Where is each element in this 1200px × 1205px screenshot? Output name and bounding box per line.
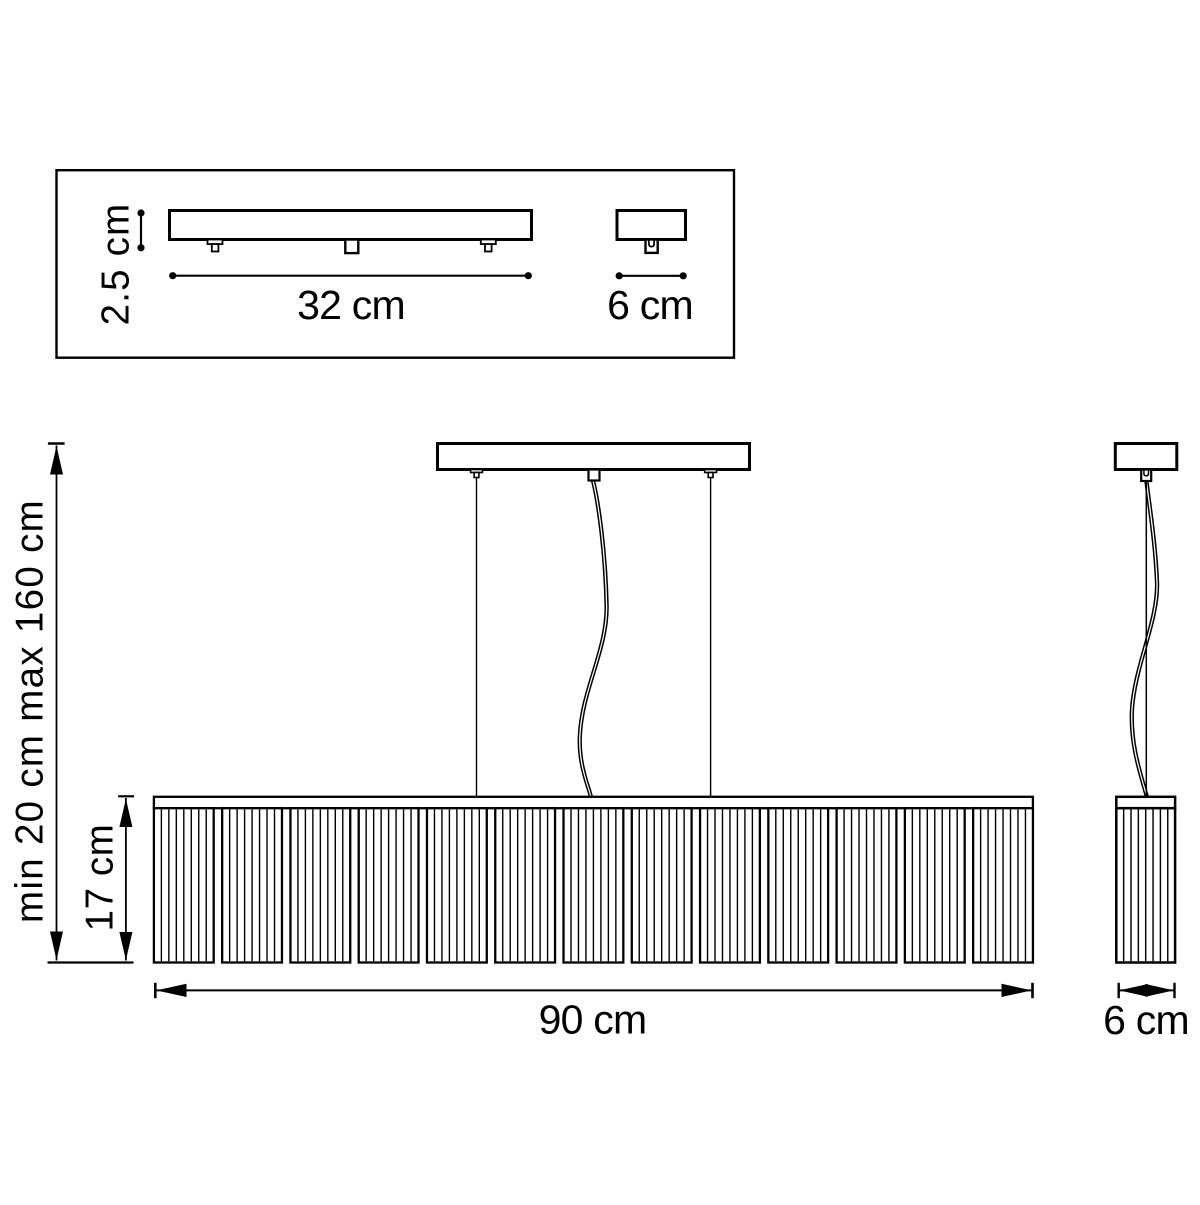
svg-text:min 20 cm max 160 cm: min 20 cm max 160 cm xyxy=(9,499,52,923)
svg-text:6 cm: 6 cm xyxy=(1103,997,1189,1043)
svg-text:2.5 cm: 2.5 cm xyxy=(95,203,138,326)
svg-text:17 cm: 17 cm xyxy=(79,824,122,932)
svg-text:6 cm: 6 cm xyxy=(607,282,693,328)
svg-text:90 cm: 90 cm xyxy=(539,997,647,1043)
svg-text:32 cm: 32 cm xyxy=(297,282,405,328)
